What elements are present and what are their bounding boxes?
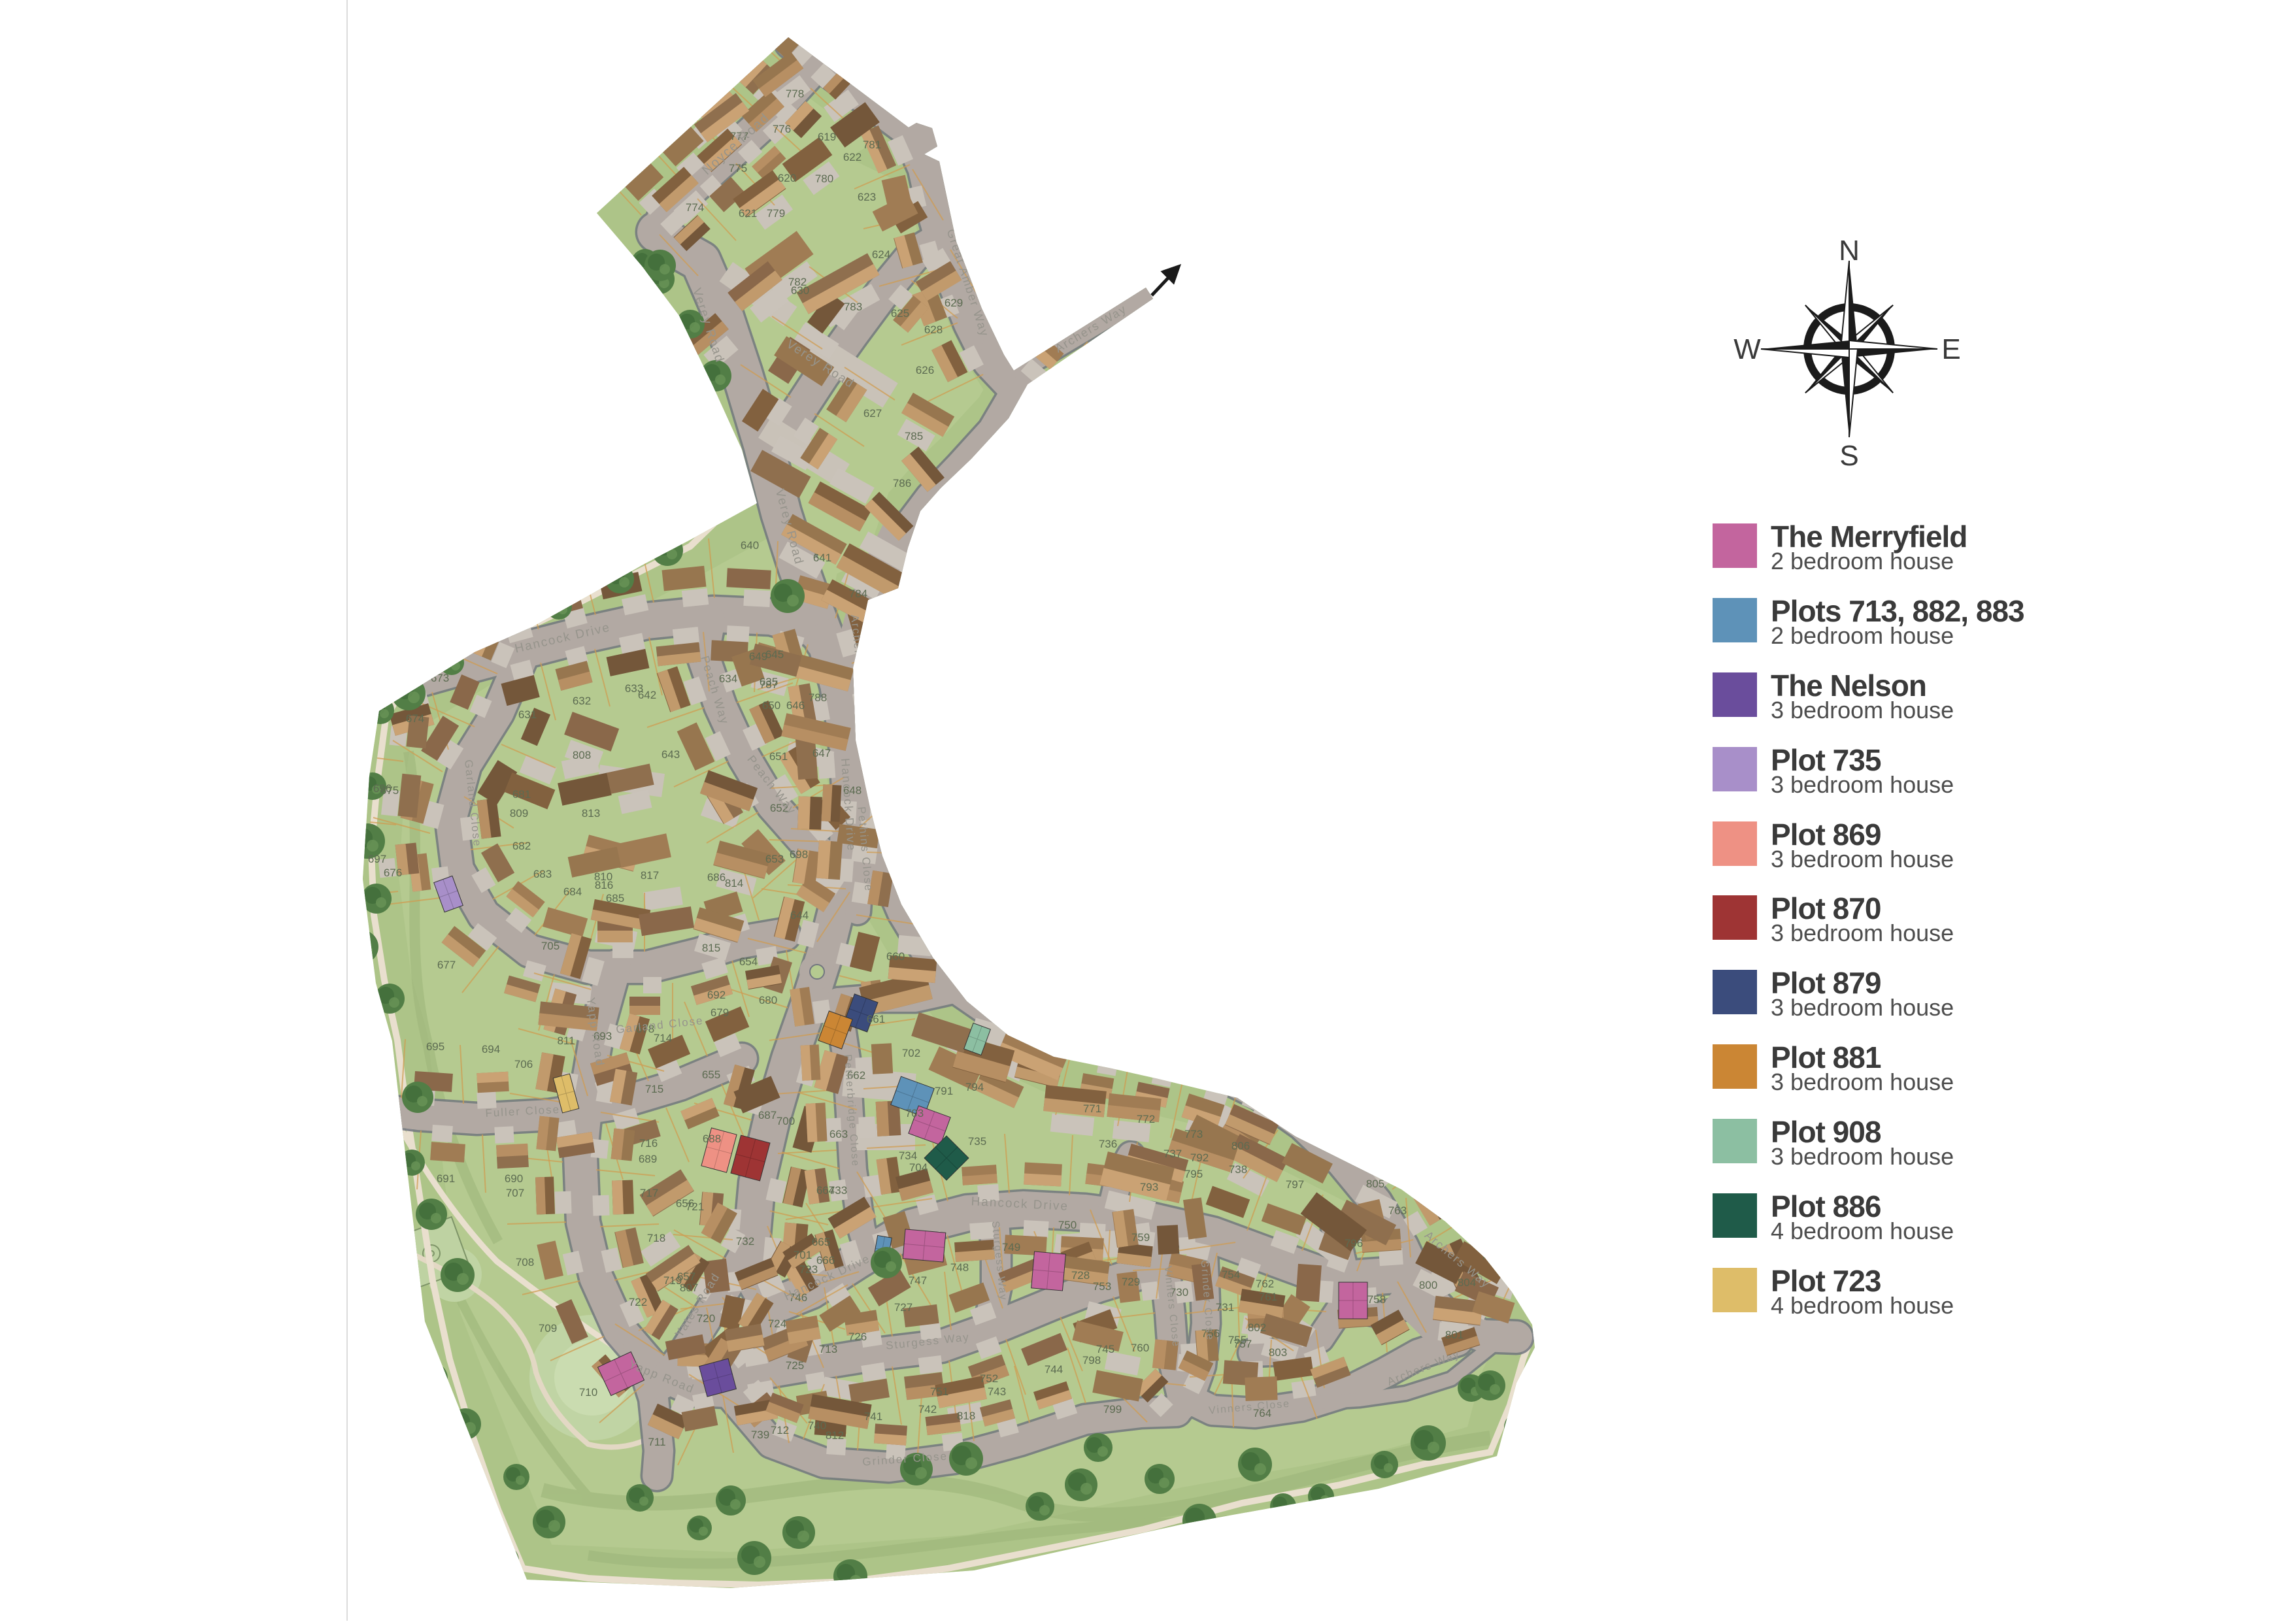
svg-text:711: 711 bbox=[648, 1436, 665, 1448]
svg-text:627: 627 bbox=[863, 407, 882, 420]
svg-text:740: 740 bbox=[808, 1419, 826, 1432]
svg-text:760: 760 bbox=[1131, 1342, 1149, 1354]
svg-text:706: 706 bbox=[514, 1058, 533, 1070]
svg-text:714: 714 bbox=[654, 1032, 672, 1044]
svg-text:3 bedroom house: 3 bedroom house bbox=[1771, 1143, 1954, 1170]
svg-text:705: 705 bbox=[541, 940, 560, 952]
svg-text:781: 781 bbox=[863, 139, 881, 151]
svg-text:733: 733 bbox=[829, 1184, 847, 1197]
svg-text:660: 660 bbox=[886, 950, 905, 963]
svg-text:628: 628 bbox=[924, 323, 943, 336]
svg-text:632: 632 bbox=[573, 695, 591, 707]
svg-text:666: 666 bbox=[816, 1254, 835, 1267]
svg-text:715: 715 bbox=[645, 1083, 663, 1095]
svg-text:697: 697 bbox=[368, 853, 386, 865]
svg-text:619: 619 bbox=[818, 131, 836, 143]
svg-text:642: 642 bbox=[638, 689, 656, 701]
svg-text:749: 749 bbox=[1002, 1241, 1020, 1253]
svg-text:728: 728 bbox=[1071, 1269, 1090, 1282]
svg-text:780: 780 bbox=[815, 173, 833, 185]
svg-text:742: 742 bbox=[918, 1403, 937, 1416]
svg-text:813: 813 bbox=[582, 807, 600, 820]
svg-text:771: 771 bbox=[1083, 1102, 1101, 1115]
svg-text:795: 795 bbox=[1184, 1168, 1203, 1180]
svg-text:631: 631 bbox=[518, 708, 537, 721]
svg-text:739: 739 bbox=[751, 1429, 769, 1441]
svg-text:802: 802 bbox=[1248, 1321, 1266, 1334]
svg-text:747: 747 bbox=[909, 1274, 927, 1287]
svg-text:738: 738 bbox=[1229, 1163, 1247, 1176]
svg-text:748: 748 bbox=[950, 1261, 969, 1274]
svg-text:741: 741 bbox=[864, 1410, 882, 1423]
svg-text:723: 723 bbox=[799, 1263, 818, 1276]
svg-text:761: 761 bbox=[1259, 1291, 1277, 1303]
svg-text:736: 736 bbox=[1099, 1138, 1117, 1150]
svg-text:735: 735 bbox=[968, 1135, 986, 1148]
svg-text:654: 654 bbox=[739, 955, 758, 968]
svg-text:709: 709 bbox=[539, 1322, 557, 1334]
svg-text:758: 758 bbox=[1367, 1293, 1386, 1306]
svg-text:688: 688 bbox=[703, 1133, 721, 1145]
svg-text:785: 785 bbox=[905, 430, 923, 442]
svg-text:640: 640 bbox=[741, 539, 759, 552]
svg-text:4 bedroom house: 4 bedroom house bbox=[1771, 1292, 1954, 1319]
svg-text:661: 661 bbox=[867, 1013, 885, 1025]
svg-text:712: 712 bbox=[771, 1424, 789, 1436]
svg-text:783: 783 bbox=[844, 301, 862, 313]
svg-text:676: 676 bbox=[384, 867, 402, 879]
svg-text:679: 679 bbox=[711, 1006, 729, 1019]
svg-text:3 bedroom house: 3 bedroom house bbox=[1771, 920, 1954, 946]
svg-text:681: 681 bbox=[512, 788, 531, 801]
svg-text:634: 634 bbox=[719, 672, 737, 685]
svg-text:724: 724 bbox=[768, 1317, 786, 1330]
svg-text:808: 808 bbox=[573, 749, 591, 761]
svg-text:626: 626 bbox=[916, 364, 934, 376]
svg-text:674: 674 bbox=[406, 712, 424, 725]
svg-text:621: 621 bbox=[739, 207, 757, 220]
svg-text:814: 814 bbox=[725, 877, 743, 889]
svg-text:772: 772 bbox=[1137, 1113, 1155, 1125]
svg-text:680: 680 bbox=[759, 994, 777, 1006]
svg-text:W: W bbox=[1733, 333, 1761, 365]
svg-text:692: 692 bbox=[707, 989, 726, 1001]
svg-text:645: 645 bbox=[765, 648, 784, 661]
svg-text:793: 793 bbox=[1140, 1181, 1158, 1193]
svg-text:784: 784 bbox=[849, 588, 867, 600]
svg-text:700: 700 bbox=[777, 1115, 795, 1127]
svg-text:774: 774 bbox=[686, 201, 704, 214]
svg-text:685: 685 bbox=[606, 892, 624, 904]
svg-text:798: 798 bbox=[1082, 1354, 1101, 1367]
svg-text:653: 653 bbox=[765, 853, 784, 865]
svg-text:704: 704 bbox=[909, 1161, 928, 1174]
svg-text:763: 763 bbox=[1388, 1204, 1407, 1217]
svg-text:720: 720 bbox=[697, 1312, 715, 1325]
svg-text:N: N bbox=[1839, 235, 1860, 267]
svg-text:3 bedroom house: 3 bedroom house bbox=[1771, 771, 1954, 798]
svg-text:710: 710 bbox=[579, 1386, 597, 1399]
svg-text:689: 689 bbox=[639, 1153, 657, 1165]
svg-text:751: 751 bbox=[930, 1385, 948, 1398]
svg-text:750: 750 bbox=[1058, 1219, 1077, 1231]
svg-text:2 bedroom house: 2 bedroom house bbox=[1771, 548, 1954, 574]
svg-text:778: 778 bbox=[786, 88, 804, 100]
svg-text:696: 696 bbox=[373, 782, 392, 795]
svg-text:718: 718 bbox=[647, 1232, 665, 1244]
svg-text:E: E bbox=[1941, 333, 1960, 365]
svg-text:726: 726 bbox=[848, 1331, 867, 1343]
svg-text:716: 716 bbox=[639, 1137, 658, 1150]
svg-text:762: 762 bbox=[1256, 1278, 1274, 1290]
svg-text:624: 624 bbox=[872, 248, 890, 261]
svg-text:655: 655 bbox=[702, 1069, 720, 1081]
svg-text:682: 682 bbox=[512, 840, 531, 852]
svg-text:722: 722 bbox=[629, 1296, 647, 1308]
svg-text:717: 717 bbox=[640, 1187, 658, 1199]
svg-text:2 bedroom house: 2 bedroom house bbox=[1771, 622, 1954, 649]
svg-text:775: 775 bbox=[729, 162, 747, 174]
svg-text:644: 644 bbox=[790, 909, 809, 921]
svg-text:812: 812 bbox=[826, 1429, 844, 1442]
svg-text:744: 744 bbox=[1045, 1363, 1063, 1376]
svg-text:792: 792 bbox=[1190, 1152, 1209, 1164]
svg-text:3 bedroom house: 3 bedroom house bbox=[1771, 994, 1954, 1021]
svg-text:752: 752 bbox=[980, 1372, 998, 1385]
svg-text:691: 691 bbox=[437, 1172, 455, 1185]
svg-text:623: 623 bbox=[858, 191, 876, 203]
svg-text:779: 779 bbox=[767, 207, 785, 220]
svg-text:687: 687 bbox=[758, 1109, 777, 1121]
svg-text:702: 702 bbox=[902, 1047, 920, 1059]
svg-text:665: 665 bbox=[812, 1236, 830, 1248]
svg-text:643: 643 bbox=[661, 748, 680, 761]
svg-text:683: 683 bbox=[533, 868, 552, 880]
svg-text:754: 754 bbox=[1222, 1268, 1240, 1281]
svg-text:625: 625 bbox=[891, 307, 909, 320]
svg-text:690: 690 bbox=[505, 1172, 523, 1185]
svg-text:713: 713 bbox=[819, 1343, 837, 1355]
svg-text:695: 695 bbox=[426, 1040, 444, 1053]
svg-text:788: 788 bbox=[809, 691, 827, 704]
svg-text:816: 816 bbox=[595, 879, 613, 891]
svg-text:796: 796 bbox=[1345, 1237, 1363, 1250]
svg-text:3 bedroom house: 3 bedroom house bbox=[1771, 697, 1954, 723]
svg-text:629: 629 bbox=[945, 297, 963, 309]
svg-text:701: 701 bbox=[794, 1249, 812, 1261]
svg-text:725: 725 bbox=[786, 1359, 804, 1372]
svg-text:663: 663 bbox=[829, 1128, 848, 1140]
svg-text:708: 708 bbox=[516, 1256, 534, 1268]
svg-text:4 bedroom house: 4 bedroom house bbox=[1771, 1218, 1954, 1244]
svg-text:794: 794 bbox=[965, 1081, 984, 1093]
svg-text:647: 647 bbox=[812, 747, 831, 759]
svg-text:811: 811 bbox=[557, 1035, 575, 1047]
svg-text:800: 800 bbox=[1419, 1279, 1437, 1291]
svg-text:686: 686 bbox=[707, 871, 726, 884]
svg-text:818: 818 bbox=[957, 1410, 975, 1422]
svg-text:791: 791 bbox=[935, 1085, 953, 1097]
svg-text:641: 641 bbox=[813, 552, 831, 564]
svg-text:694: 694 bbox=[482, 1043, 500, 1055]
svg-text:806: 806 bbox=[1231, 1140, 1250, 1152]
svg-text:684: 684 bbox=[563, 886, 582, 898]
svg-text:797: 797 bbox=[1286, 1178, 1304, 1191]
svg-text:815: 815 bbox=[702, 942, 720, 954]
svg-text:698: 698 bbox=[790, 848, 808, 861]
svg-text:732: 732 bbox=[736, 1235, 754, 1248]
svg-text:786: 786 bbox=[893, 477, 911, 489]
svg-text:734: 734 bbox=[899, 1150, 917, 1162]
svg-text:787: 787 bbox=[760, 678, 778, 691]
svg-text:703: 703 bbox=[905, 1107, 924, 1119]
svg-text:3 bedroom house: 3 bedroom house bbox=[1771, 1069, 1954, 1095]
svg-text:651: 651 bbox=[769, 750, 788, 763]
svg-text:646: 646 bbox=[786, 699, 805, 712]
svg-text:757: 757 bbox=[1233, 1338, 1252, 1350]
svg-text:782: 782 bbox=[788, 276, 807, 288]
svg-text:729: 729 bbox=[1122, 1276, 1140, 1288]
svg-text:707: 707 bbox=[506, 1187, 524, 1199]
svg-text:620: 620 bbox=[778, 172, 796, 184]
svg-text:807: 807 bbox=[680, 1282, 698, 1294]
svg-text:773: 773 bbox=[1184, 1128, 1203, 1140]
svg-text:776: 776 bbox=[773, 123, 791, 135]
svg-text:650: 650 bbox=[762, 699, 780, 712]
svg-text:731: 731 bbox=[1216, 1301, 1234, 1314]
svg-text:721: 721 bbox=[686, 1201, 704, 1213]
svg-text:799: 799 bbox=[1103, 1403, 1122, 1416]
svg-text:649: 649 bbox=[749, 650, 767, 663]
svg-text:803: 803 bbox=[1269, 1346, 1287, 1359]
svg-text:677: 677 bbox=[437, 959, 456, 971]
svg-text:727: 727 bbox=[894, 1301, 912, 1314]
svg-text:817: 817 bbox=[641, 869, 659, 882]
svg-text:801: 801 bbox=[1445, 1329, 1464, 1341]
svg-text:753: 753 bbox=[1093, 1280, 1111, 1293]
svg-text:622: 622 bbox=[843, 151, 862, 163]
svg-text:809: 809 bbox=[510, 807, 528, 820]
svg-text:743: 743 bbox=[988, 1385, 1006, 1398]
svg-text:759: 759 bbox=[1131, 1231, 1150, 1244]
svg-text:S: S bbox=[1839, 440, 1858, 472]
svg-text:737: 737 bbox=[1163, 1148, 1182, 1160]
svg-text:3 bedroom house: 3 bedroom house bbox=[1771, 846, 1954, 872]
